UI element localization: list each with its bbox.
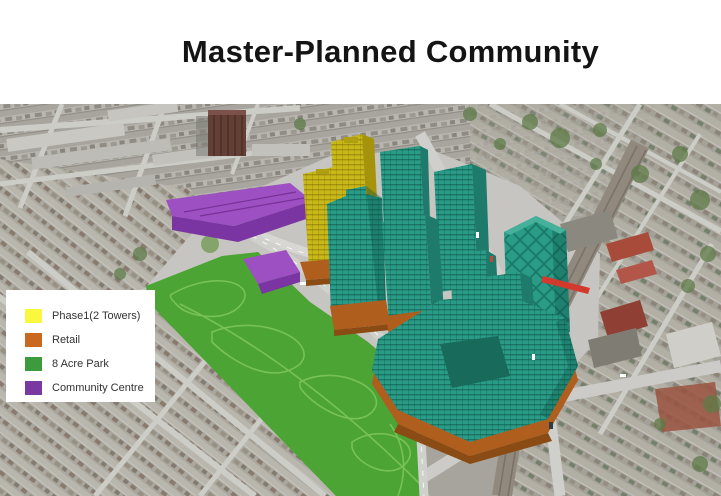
phase1-swatch [25,309,42,323]
park-label: 8 Acre Park [52,358,109,370]
legend: Phase1(2 Towers) Retail 8 Acre Park Comm… [6,290,155,402]
retail-swatch [25,333,42,347]
title-bar: Master-Planned Community [0,0,721,104]
legend-item-phase1: Phase1(2 Towers) [25,304,155,328]
slide: Master-Planned Community [0,0,721,496]
tower-shadow [196,116,208,156]
teal-midrise-d [327,186,390,336]
park-swatch [25,357,42,371]
red-brick-tower [208,110,246,156]
community-centre-swatch [25,381,42,395]
legend-item-community-centre: Community Centre [25,376,155,400]
retail-label: Retail [52,334,80,346]
legend-item-park: 8 Acre Park [25,352,155,376]
page-title: Master-Planned Community [182,34,599,70]
community-centre-label: Community Centre [52,382,144,394]
phase1-label: Phase1(2 Towers) [52,310,140,322]
legend-item-retail: Retail [25,328,155,352]
